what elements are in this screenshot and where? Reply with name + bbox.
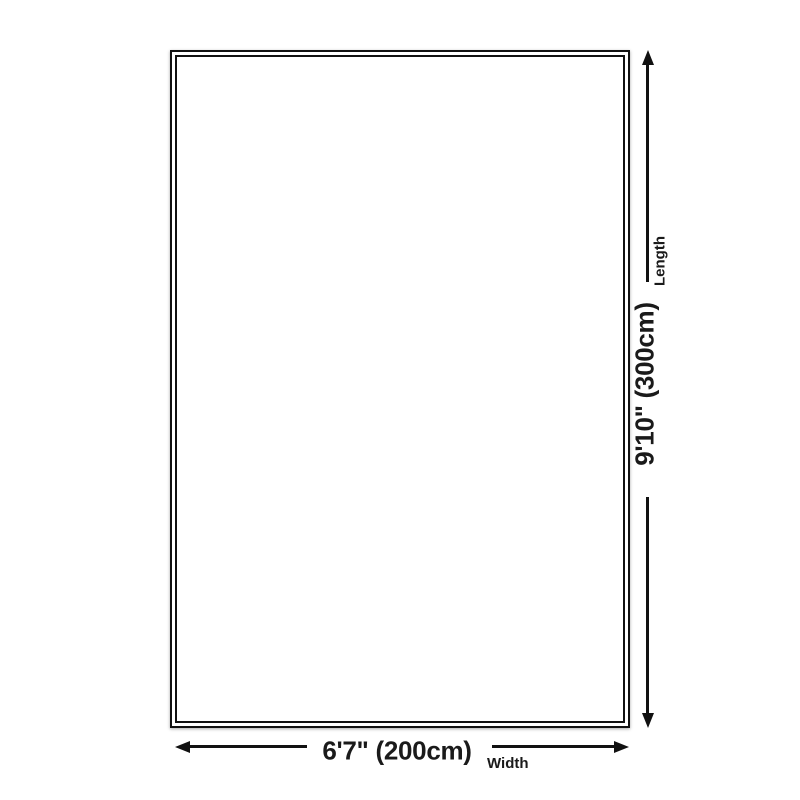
dimension-diagram: Length 9'10" (300cm) 6'7" (200cm) Width [0,0,800,800]
arrow-up-icon [642,50,654,65]
width-arrow-line-right [492,745,614,748]
width-label: Width [487,755,529,772]
length-arrow-line-top [646,64,649,282]
length-dimension-text: 9'10" (300cm) [630,302,661,466]
width-dimension-text: 6'7" (200cm) [322,736,471,767]
rug-outline [170,50,630,728]
length-label: Length [652,236,669,286]
arrow-left-icon [175,741,190,753]
arrow-down-icon [642,713,654,728]
arrow-right-icon [614,741,629,753]
rug-inner-border [175,55,625,723]
width-arrow-line-left [190,745,307,748]
length-arrow-line-bottom [646,497,649,714]
